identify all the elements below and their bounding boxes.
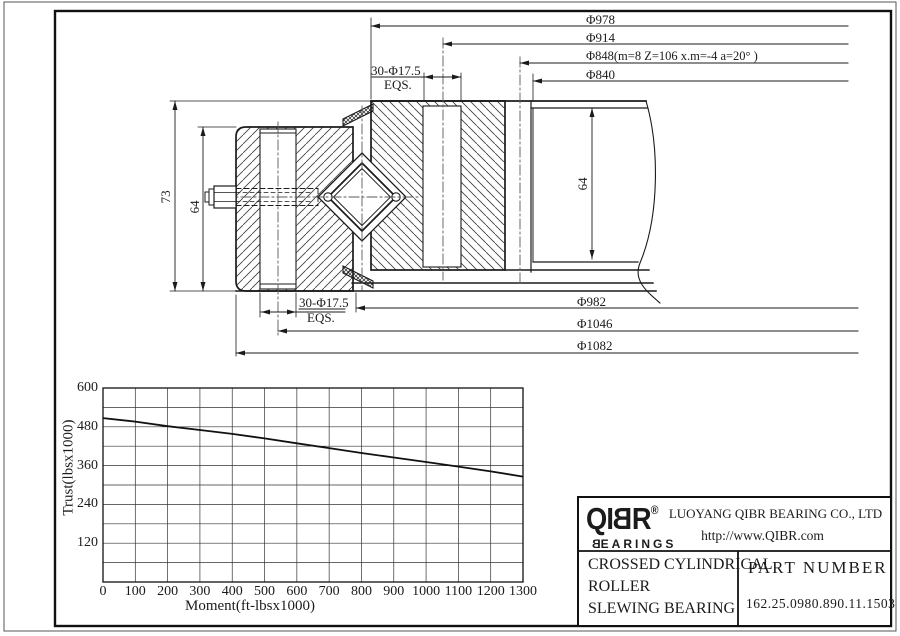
dim-label-bolt-circle-914: Φ914 [586,31,615,45]
dim-label-840: Φ840 [586,68,615,82]
chart-x-tick: 1300 [506,584,540,600]
registered-mark: ® [651,503,659,517]
chart-x-tick: 700 [312,584,346,600]
dim-label-gear-848: Φ848(m=8 Z=106 x.m=-4 a=20° ) [586,50,758,63]
qibr-logo: QIBR® [586,501,658,537]
chart-x-tick: 1200 [474,584,508,600]
chart-x-tick: 1100 [441,584,475,600]
mirrored-b-glyph: B [613,501,632,537]
hole-callout-top-eqs: EQS. [384,78,412,92]
dim-label-1046: Φ1046 [577,317,613,331]
break-line [638,101,660,303]
bearing-section [170,18,858,356]
dim-label-height-73: 73 [159,177,173,217]
chart-y-tick: 240 [62,496,98,512]
dim-label-height-64-left: 64 [188,187,202,227]
dim-label-1082: Φ1082 [577,339,613,353]
grease-nipple [205,186,236,208]
hole-callout-top: 30-Φ17.5 [371,64,421,78]
chart-x-tick: 200 [151,584,185,600]
company-name: LUOYANG QIBR BEARING CO., LTD [668,506,883,522]
part-number-value: 162.25.0980.890.11.1503 [746,596,895,612]
hole-callout-bottom-eqs: EQS. [307,311,335,325]
chart-x-tick: 600 [280,584,314,600]
chart-x-tick: 500 [248,584,282,600]
dim-label-982: Φ982 [577,295,606,309]
chart-x-tick: 0 [86,584,120,600]
mirrored-b-glyph: B [589,537,601,551]
dim-label-height-64-right: 64 [576,164,590,204]
chart-y-tick: 480 [62,419,98,435]
capacity-chart [103,388,523,582]
dim-label-od-978: Φ978 [586,13,615,27]
chart-xaxis-title: Moment(ft-lbsx1000) [160,598,340,615]
chart-x-tick: 400 [215,584,249,600]
part-number-label: PART NUMBER [748,558,888,578]
chart-x-tick: 1000 [409,584,443,600]
chart-y-tick: 600 [62,380,98,396]
chart-x-tick: 100 [118,584,152,600]
product-description: CROSSED CYLINDRICAL ROLLER SLEWING BEARI… [588,554,772,620]
engineering-drawing-page: Φ978 Φ914 Φ848(m=8 Z=106 x.m=-4 a=20° ) … [0,0,900,636]
chart-x-tick: 300 [183,584,217,600]
chart-y-tick: 360 [62,458,98,474]
hole-callout-bottom: 30-Φ17.5 [299,296,349,310]
chart-x-tick: 900 [377,584,411,600]
chart-y-tick: 120 [62,535,98,551]
chart-x-tick: 800 [344,584,378,600]
company-website: http://www.QIBR.com [655,528,870,544]
